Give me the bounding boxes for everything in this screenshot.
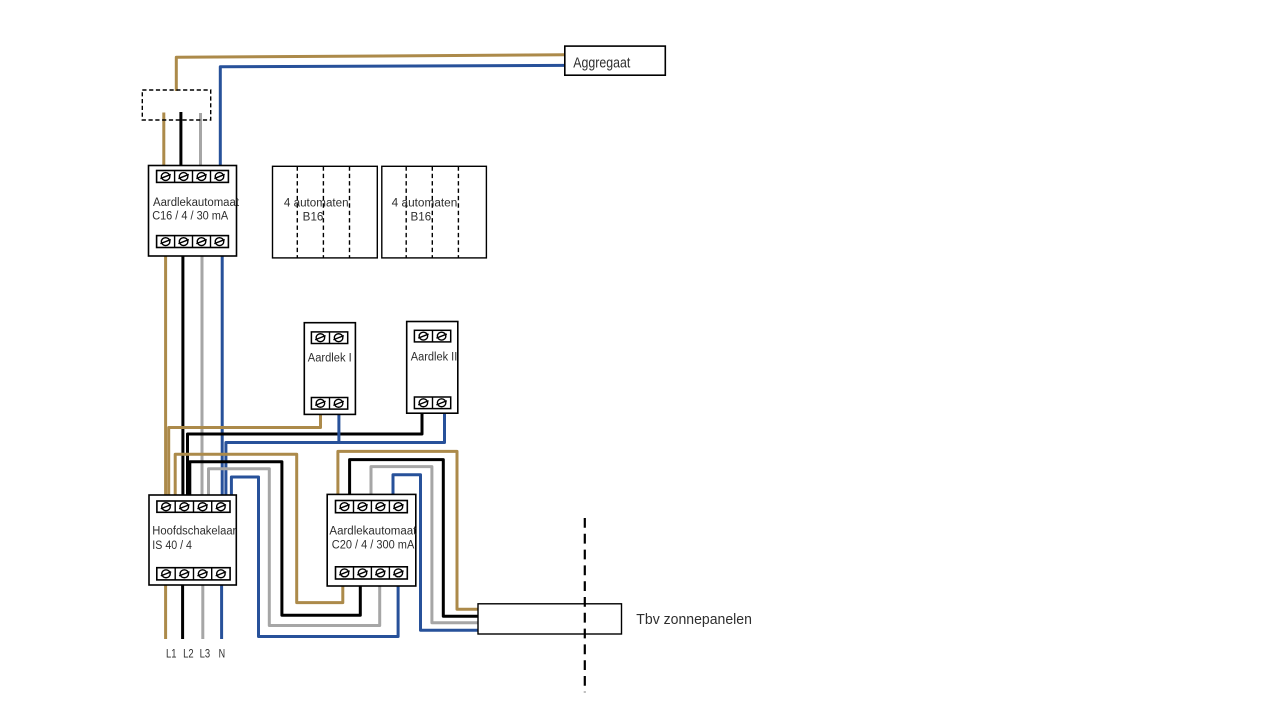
svg-text:B16: B16 <box>303 211 324 223</box>
svg-text:Aardlek II: Aardlek II <box>411 351 458 363</box>
svg-text:L1: L1 <box>166 649 177 661</box>
svg-text:4 automaten: 4 automaten <box>284 198 349 210</box>
svg-text:L2: L2 <box>183 649 194 661</box>
svg-text:L3: L3 <box>200 649 211 661</box>
svg-text:Hoofdschakelaar: Hoofdschakelaar <box>152 526 236 538</box>
svg-text:Aardlekautomaat: Aardlekautomaat <box>153 197 240 209</box>
svg-text:Aardlekautomaat: Aardlekautomaat <box>329 526 417 538</box>
svg-text:C16 / 4 / 30 mA: C16 / 4 / 30 mA <box>152 211 228 223</box>
svg-text:4 automaten: 4 automaten <box>392 198 458 210</box>
svg-text:Tbv zonnepanelen: Tbv zonnepanelen <box>636 611 752 628</box>
svg-text:B16: B16 <box>411 211 432 223</box>
svg-text:N: N <box>219 649 226 661</box>
svg-text:C20 / 4 / 300 mA: C20 / 4 / 300 mA <box>332 540 415 552</box>
svg-text:Aardlek I: Aardlek I <box>308 353 352 365</box>
svg-text:Aggregaat: Aggregaat <box>573 54 631 71</box>
svg-text:IS 40 / 4: IS 40 / 4 <box>152 540 192 552</box>
